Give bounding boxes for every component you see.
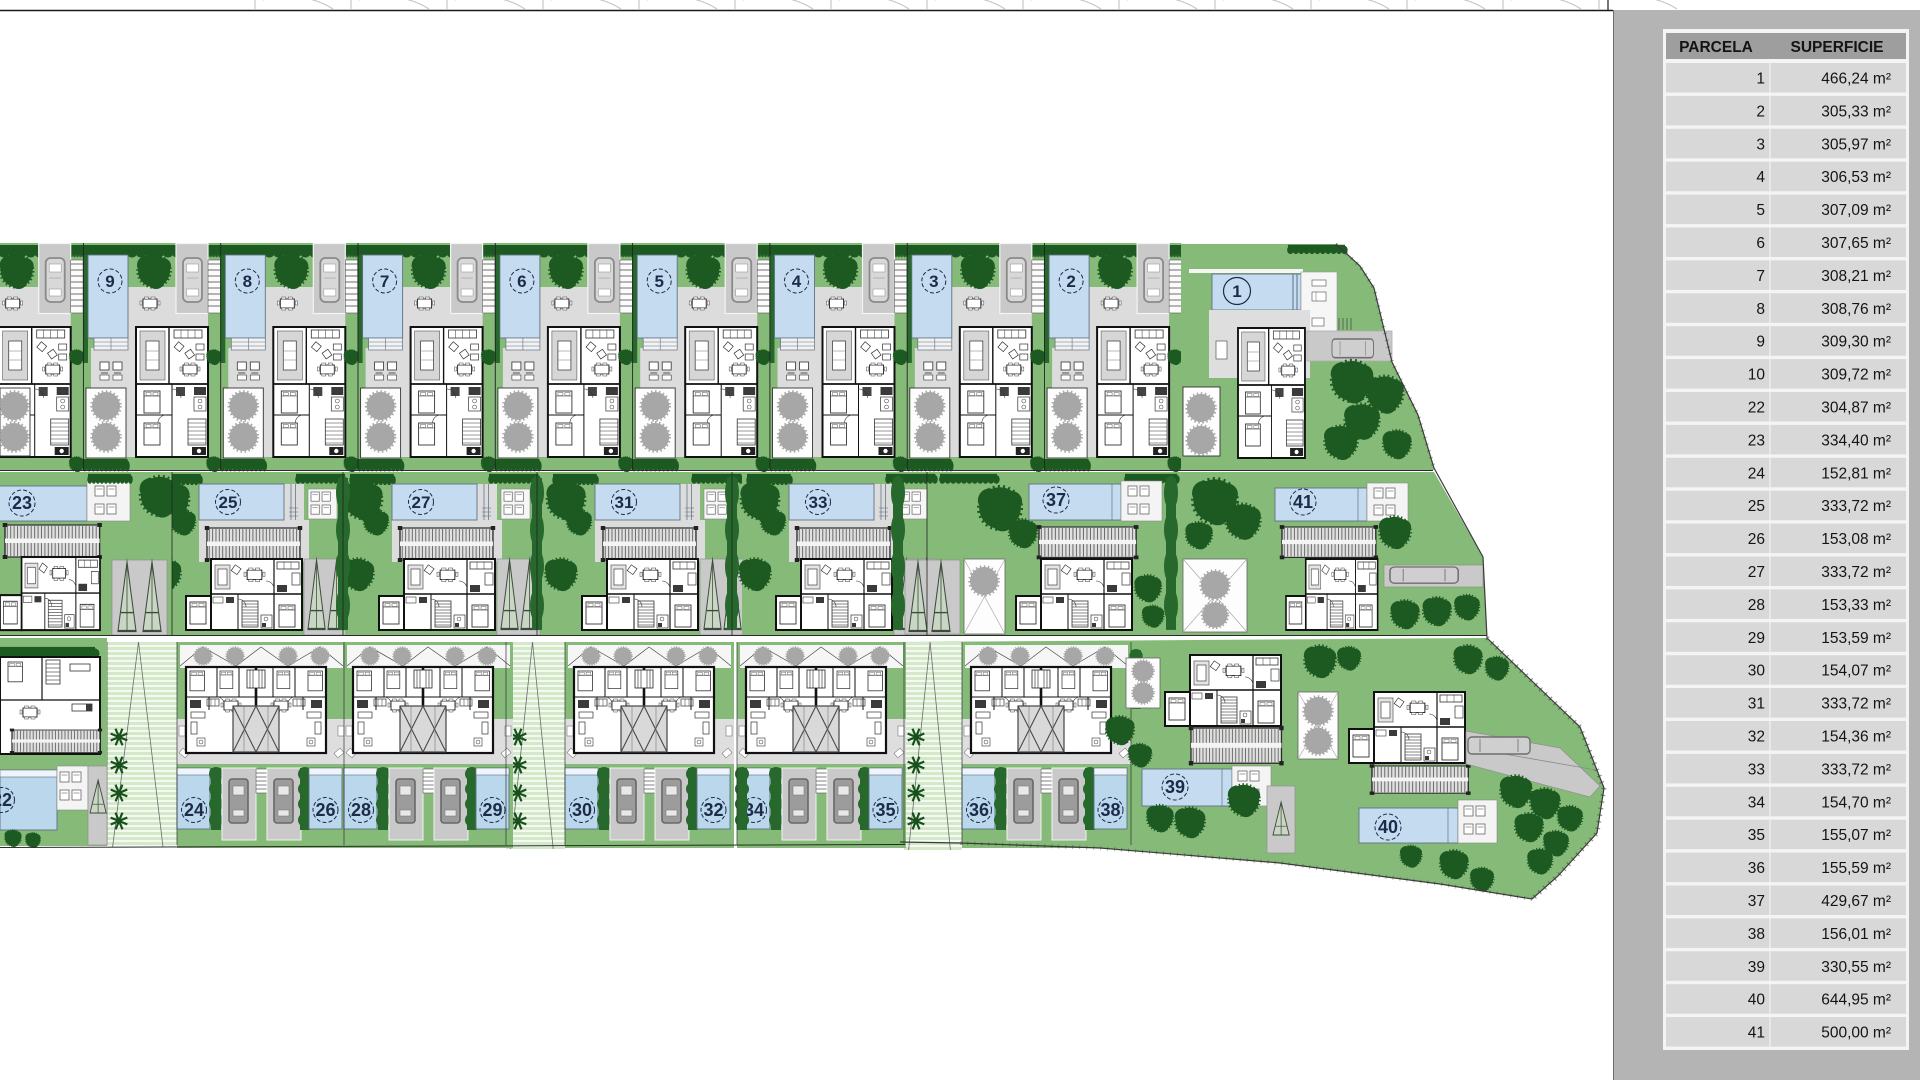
svg-text:156,01 m²: 156,01 m² (1821, 926, 1891, 943)
svg-text:333,72 m²: 333,72 m² (1821, 696, 1891, 713)
svg-text:6: 6 (1756, 235, 1765, 252)
svg-text:PARCELA: PARCELA (1679, 39, 1753, 56)
svg-text:38: 38 (1748, 926, 1765, 943)
svg-text:154,36 m²: 154,36 m² (1821, 729, 1891, 746)
svg-text:41: 41 (1293, 492, 1313, 512)
svg-text:309,30 m²: 309,30 m² (1821, 334, 1891, 351)
svg-text:32: 32 (703, 800, 723, 820)
svg-text:5: 5 (654, 272, 663, 291)
svg-text:304,87 m²: 304,87 m² (1821, 400, 1891, 417)
svg-text:29: 29 (1748, 630, 1765, 647)
svg-text:32: 32 (1748, 729, 1765, 746)
svg-text:333,72 m²: 333,72 m² (1821, 564, 1891, 581)
svg-text:37: 37 (1748, 893, 1765, 910)
svg-text:25: 25 (1748, 498, 1765, 515)
svg-text:26: 26 (315, 800, 335, 820)
svg-text:3: 3 (1756, 136, 1765, 153)
svg-text:38: 38 (1100, 800, 1120, 820)
svg-text:644,95 m²: 644,95 m² (1821, 992, 1891, 1009)
svg-text:30: 30 (572, 800, 592, 820)
svg-text:27: 27 (412, 493, 431, 512)
svg-text:22: 22 (0, 790, 12, 810)
svg-text:500,00 m²: 500,00 m² (1821, 1025, 1891, 1042)
svg-text:24: 24 (184, 800, 204, 820)
svg-text:154,70 m²: 154,70 m² (1821, 794, 1891, 811)
svg-text:33: 33 (1748, 761, 1765, 778)
svg-text:24: 24 (1748, 465, 1766, 482)
svg-text:30: 30 (1748, 663, 1766, 680)
svg-text:7: 7 (1756, 268, 1765, 285)
svg-text:5: 5 (1756, 202, 1765, 219)
svg-text:22: 22 (1748, 400, 1765, 417)
svg-text:40: 40 (1378, 817, 1398, 837)
svg-text:1: 1 (1756, 71, 1765, 88)
svg-text:153,08 m²: 153,08 m² (1821, 531, 1891, 548)
svg-text:305,97 m²: 305,97 m² (1821, 136, 1891, 153)
svg-text:31: 31 (1748, 696, 1765, 713)
svg-text:2: 2 (1756, 103, 1765, 120)
svg-text:333,72 m²: 333,72 m² (1821, 498, 1891, 515)
svg-text:333,72 m²: 333,72 m² (1821, 761, 1891, 778)
svg-text:308,21 m²: 308,21 m² (1821, 268, 1891, 285)
svg-text:307,09 m²: 307,09 m² (1821, 202, 1891, 219)
svg-text:155,59 m²: 155,59 m² (1821, 860, 1891, 877)
svg-text:9: 9 (105, 272, 114, 291)
svg-text:25: 25 (219, 493, 238, 512)
svg-text:23: 23 (12, 493, 32, 513)
svg-text:40: 40 (1748, 992, 1766, 1009)
svg-text:36: 36 (1748, 860, 1765, 877)
svg-text:31: 31 (615, 493, 634, 512)
svg-text:4: 4 (1756, 169, 1765, 186)
svg-text:34: 34 (1748, 794, 1766, 811)
svg-text:8: 8 (243, 272, 252, 291)
svg-text:28: 28 (351, 800, 371, 820)
svg-text:SUPERFICIE: SUPERFICIE (1790, 39, 1883, 56)
svg-text:153,33 m²: 153,33 m² (1821, 597, 1891, 614)
svg-text:35: 35 (1748, 827, 1765, 844)
svg-text:305,33 m²: 305,33 m² (1821, 103, 1891, 120)
svg-text:309,72 m²: 309,72 m² (1821, 367, 1891, 384)
svg-text:306,53 m²: 306,53 m² (1821, 169, 1891, 186)
svg-text:1: 1 (1232, 282, 1241, 301)
svg-text:8: 8 (1756, 301, 1765, 318)
svg-text:334,40 m²: 334,40 m² (1821, 432, 1891, 449)
svg-text:153,59 m²: 153,59 m² (1821, 630, 1891, 647)
svg-text:152,81 m²: 152,81 m² (1821, 465, 1891, 482)
svg-text:307,65 m²: 307,65 m² (1821, 235, 1891, 252)
svg-text:330,55 m²: 330,55 m² (1821, 959, 1891, 976)
svg-text:36: 36 (969, 800, 989, 820)
svg-text:39: 39 (1748, 959, 1765, 976)
svg-text:26: 26 (1748, 531, 1765, 548)
svg-text:6: 6 (517, 272, 526, 291)
svg-text:41: 41 (1748, 1025, 1765, 1042)
svg-text:23: 23 (1748, 432, 1765, 449)
svg-text:3: 3 (929, 272, 938, 291)
svg-text:2: 2 (1066, 272, 1075, 291)
svg-text:35: 35 (875, 800, 895, 820)
svg-text:33: 33 (809, 493, 828, 512)
svg-text:29: 29 (482, 800, 502, 820)
svg-text:27: 27 (1748, 564, 1765, 581)
svg-text:39: 39 (1165, 777, 1185, 797)
svg-text:4: 4 (792, 272, 802, 291)
svg-text:155,07 m²: 155,07 m² (1821, 827, 1891, 844)
svg-text:9: 9 (1756, 334, 1765, 351)
svg-text:37: 37 (1046, 490, 1066, 510)
svg-text:308,76 m²: 308,76 m² (1821, 301, 1891, 318)
svg-text:10: 10 (1748, 367, 1766, 384)
svg-text:28: 28 (1748, 597, 1765, 614)
svg-text:154,07 m²: 154,07 m² (1821, 663, 1891, 680)
svg-text:429,67 m²: 429,67 m² (1821, 893, 1891, 910)
svg-text:7: 7 (380, 272, 389, 291)
svg-text:466,24 m²: 466,24 m² (1821, 71, 1891, 88)
